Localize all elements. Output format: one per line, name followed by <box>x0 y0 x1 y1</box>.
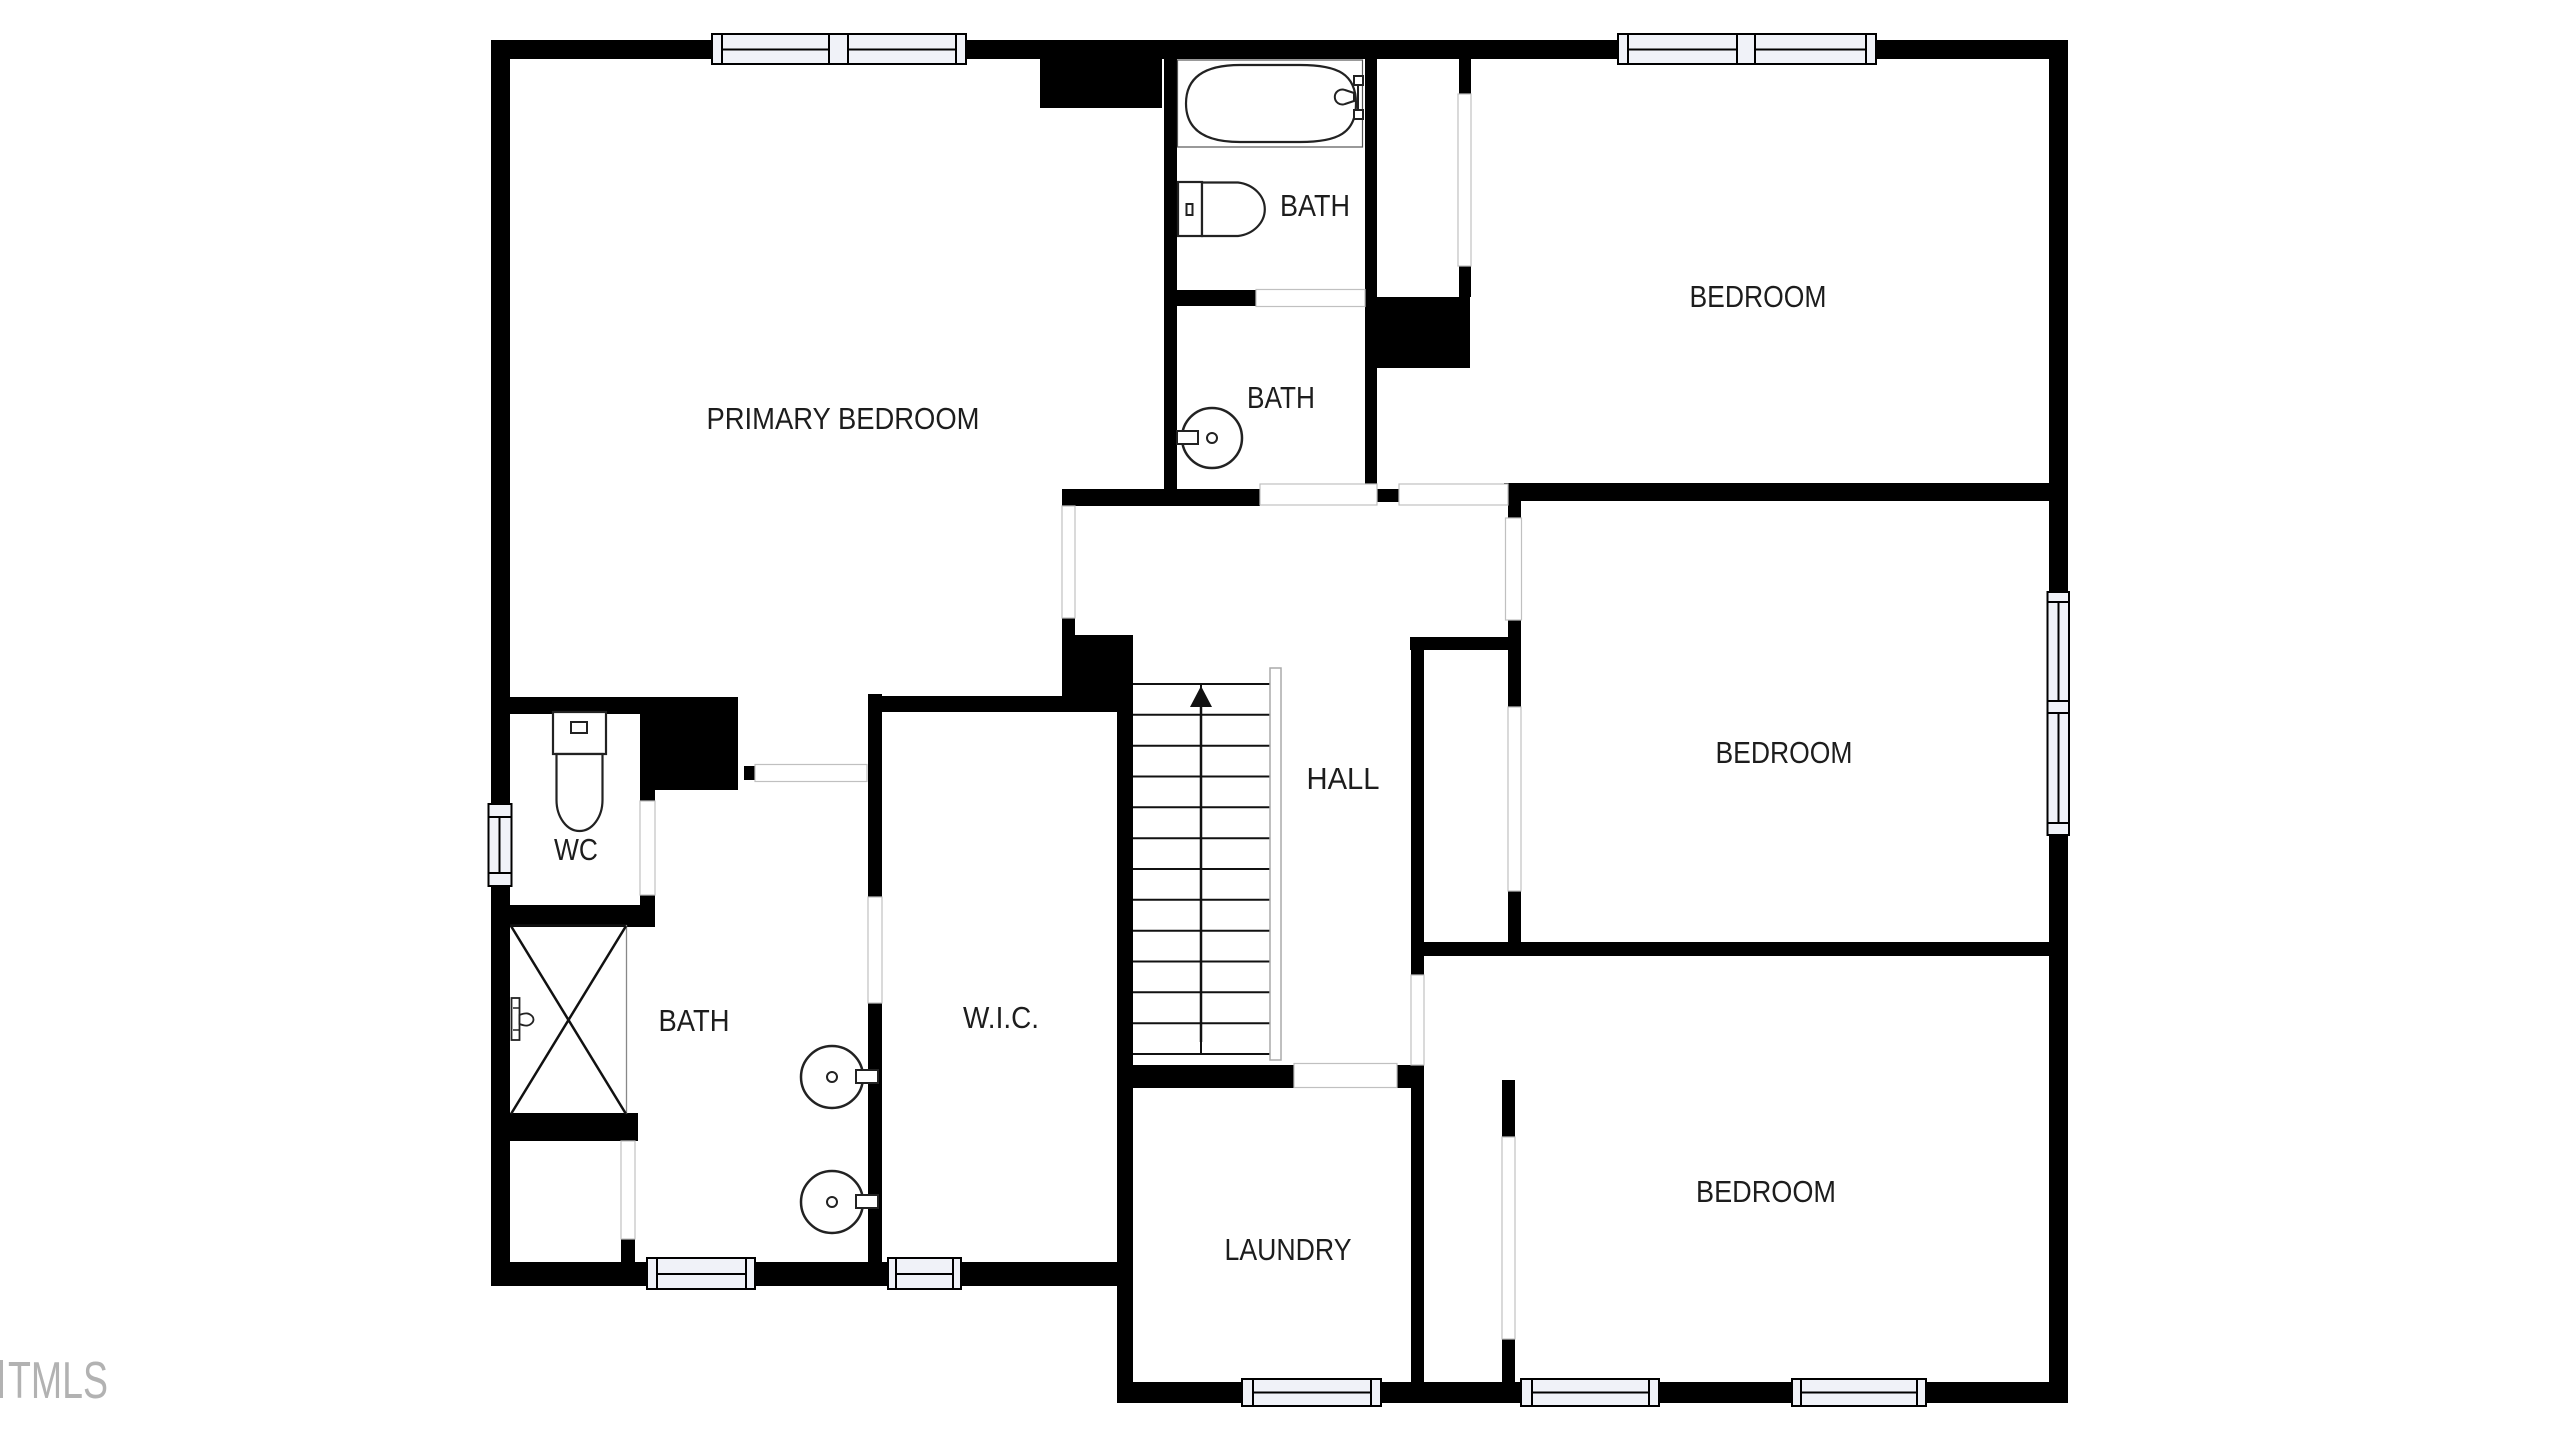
svg-text:BEDROOM: BEDROOM <box>1716 735 1853 770</box>
svg-text:BATH: BATH <box>1247 380 1315 415</box>
svg-text:WC: WC <box>554 832 598 867</box>
svg-text:PRIMARY BEDROOM: PRIMARY BEDROOM <box>707 401 980 436</box>
svg-text:BATH: BATH <box>659 1003 730 1038</box>
svg-text:W.I.C.: W.I.C. <box>963 1000 1039 1035</box>
svg-text:TMLS: TMLS <box>8 1352 108 1410</box>
svg-text:BEDROOM: BEDROOM <box>1696 1174 1836 1209</box>
svg-text:BEDROOM: BEDROOM <box>1690 279 1827 314</box>
svg-text:HALL: HALL <box>1307 761 1380 796</box>
svg-text:LAUNDRY: LAUNDRY <box>1225 1232 1352 1267</box>
svg-text:BATH: BATH <box>1280 188 1350 223</box>
